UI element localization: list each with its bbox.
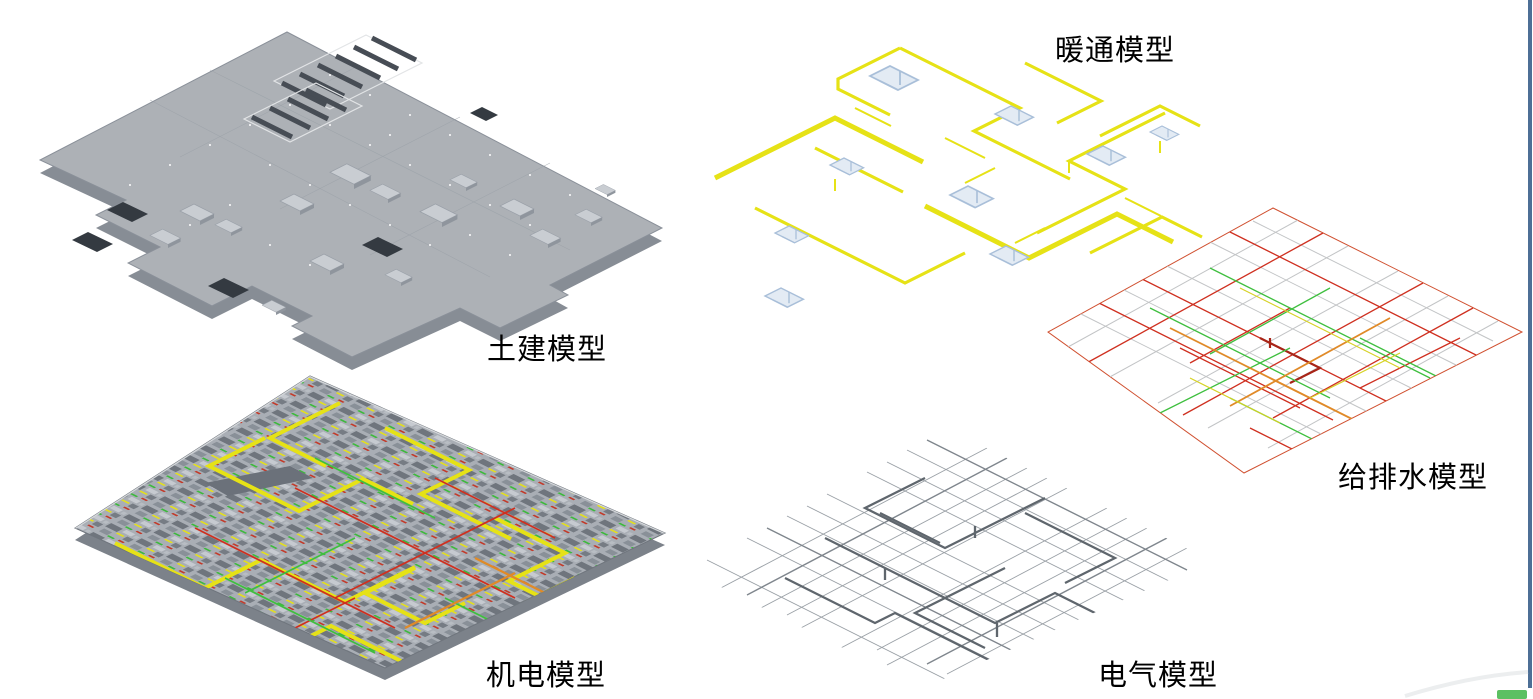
mep-model-panel [55, 368, 675, 699]
bottom-right-chip [1497, 690, 1527, 699]
plumbing-model-label: 给排水模型 [1338, 461, 1488, 494]
civil-model-label: 土建模型 [487, 333, 607, 366]
electrical-trunk-lines [785, 478, 1145, 668]
bim-figure-page: { "page": { "background": "#ffffff" }, "… [0, 0, 1533, 699]
electrical-model-panel [675, 418, 1233, 699]
electrical-model-render [675, 418, 1233, 699]
civil-model-render [30, 5, 680, 370]
civil-model-panel [30, 5, 680, 370]
mep-model-render [55, 368, 675, 699]
right-edge-line [1528, 0, 1532, 688]
electrical-model-label: 电气模型 [1098, 659, 1218, 692]
mep-model-label: 机电模型 [486, 659, 606, 692]
hvac-model-label: 暖通模型 [1055, 34, 1175, 67]
electrical-medium-lines [747, 440, 1187, 664]
